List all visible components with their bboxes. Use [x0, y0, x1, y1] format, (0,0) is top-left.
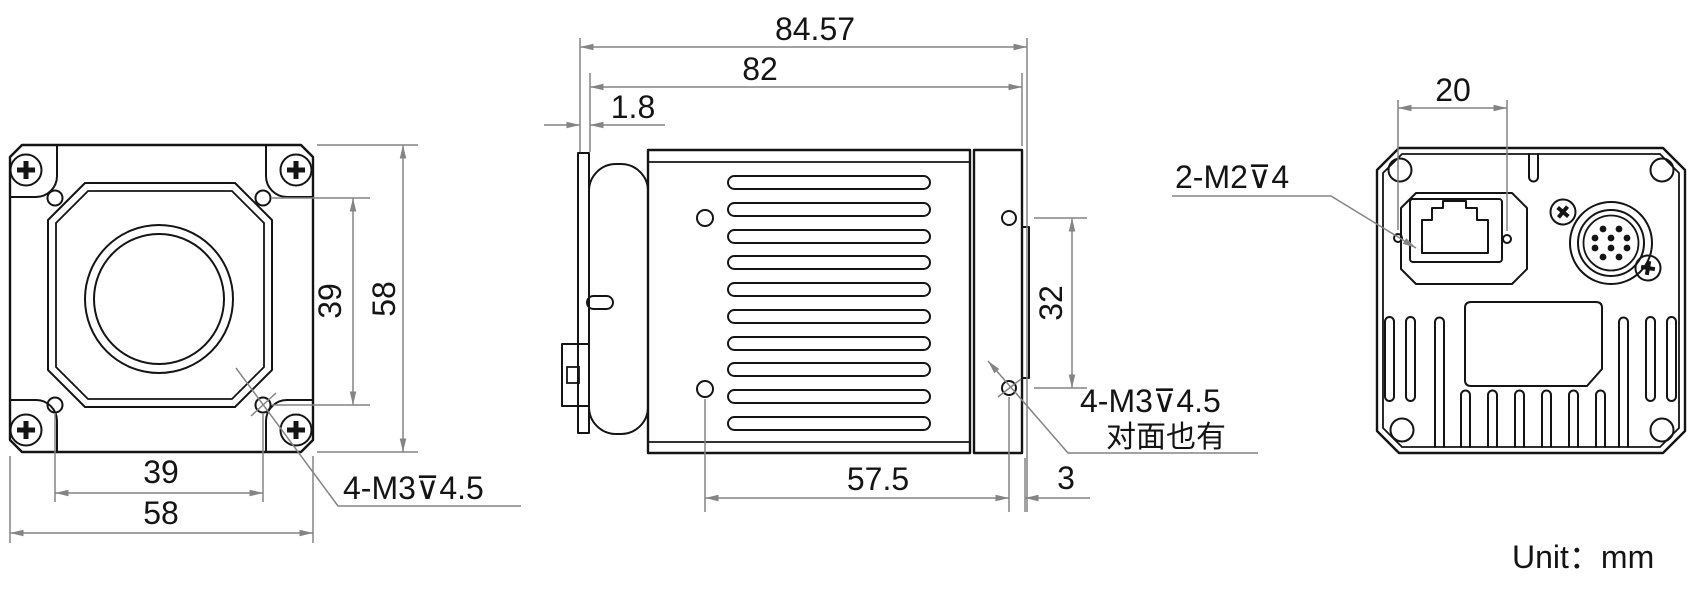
- corner-hole: [1389, 159, 1412, 182]
- dim-side-total-depth: 84.57: [775, 11, 855, 47]
- m3-hole: [697, 381, 713, 397]
- phillips-screw-icon: [1634, 254, 1663, 283]
- phillips-screw-icon: [11, 155, 42, 186]
- vent-slots: [728, 176, 930, 430]
- m3-hole: [48, 191, 63, 206]
- dim-back-hole-span: 20: [1435, 72, 1471, 108]
- phillips-screw-icon: [11, 415, 42, 446]
- dim-front-width: 58: [143, 495, 179, 531]
- side-view-dimensions: 84.57 82 1.8 32 57.5 3 4-M3⊽4.5 对面也有: [544, 11, 1258, 512]
- m2-hole: [1503, 235, 1511, 243]
- dim-side-hole-span-h: 57.5: [847, 461, 909, 497]
- dimension-drawing: 39 58 39 58 4-M3⊽4.5: [0, 0, 1693, 595]
- side-mount-hole-note: 4-M3⊽4.5: [1080, 383, 1221, 419]
- m3-hole: [1002, 211, 1016, 225]
- corner-hole: [1391, 419, 1414, 442]
- drawing-canvas: 39 58 39 58 4-M3⊽4.5: [0, 0, 1693, 595]
- back-view-dimensions: 20 2-M2⊽4: [1172, 72, 1507, 248]
- heatsink-fins: [1385, 317, 1676, 447]
- dim-side-front-flange: 1.8: [611, 89, 655, 125]
- phillips-screw-icon: [281, 415, 312, 446]
- corner-hole: [1651, 419, 1674, 442]
- leader-line: [1172, 196, 1416, 248]
- front-view: [10, 145, 313, 452]
- lens-ring-outer: [85, 225, 233, 373]
- side-view: [562, 150, 1029, 453]
- lens-barrel-profile: [589, 164, 648, 434]
- side-block: [562, 344, 589, 406]
- dim-side-rear-offset: 3: [1057, 460, 1075, 496]
- side-mount-hole-note-extra: 对面也有: [1106, 421, 1226, 454]
- label-plate: [1465, 302, 1602, 386]
- dim-front-height: 58: [366, 281, 402, 317]
- rj45-jack-profile: [1422, 201, 1488, 253]
- dim-side-rear-hole-span: 32: [1033, 285, 1069, 321]
- side-body-outline: [648, 150, 970, 453]
- dim-front-hole-span-v: 39: [312, 283, 348, 319]
- back-mount-hole-note: 2-M2⊽4: [1175, 159, 1289, 195]
- power-io-connector: [1570, 202, 1652, 284]
- lens-ring-inner: [94, 234, 224, 364]
- back-view: [1377, 148, 1685, 453]
- top-slot: [1529, 154, 1538, 182]
- phillips-screw-icon: [281, 155, 312, 186]
- front-mount-hole-note: 4-M3⊽4.5: [343, 470, 484, 506]
- dim-front-hole-span-h: 39: [143, 454, 179, 490]
- front-plate-tab: [587, 296, 613, 309]
- m3-hole: [697, 210, 713, 226]
- front-plate-edge: [578, 153, 589, 433]
- corner-hole: [1651, 159, 1674, 182]
- unit-note: Unit：mm: [1512, 539, 1654, 575]
- back-body-inner: [1383, 154, 1679, 447]
- back-panel-profile: [974, 150, 1022, 453]
- dim-side-body-depth: 82: [742, 51, 778, 87]
- m3-hole: [256, 191, 271, 206]
